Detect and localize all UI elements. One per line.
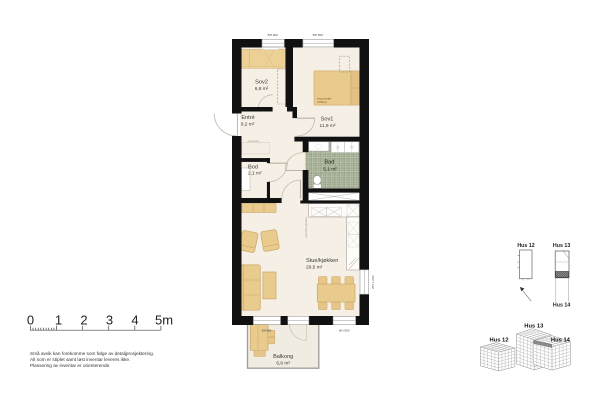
svg-text:6,6 m²: 6,6 m² [276, 361, 290, 367]
svg-text:2,1 m²: 2,1 m² [248, 171, 262, 177]
svg-text:Hus 13: Hus 13 [524, 323, 544, 329]
svg-text:Bad: Bad [324, 160, 334, 166]
svg-text:1: 1 [55, 313, 62, 328]
svg-text:Sov1: Sov1 [321, 117, 334, 123]
svg-text:BH 900: BH 900 [313, 33, 324, 37]
svg-text:1500mm: 1500mm [317, 100, 327, 104]
svg-text:Stue/kjøkken: Stue/kjøkken [306, 258, 338, 264]
svg-text:5m: 5m [155, 313, 173, 328]
svg-text:4: 4 [131, 313, 138, 328]
svg-text:Alt som er stiplet samt løst i: Alt som er stiplet samt løst inventar le… [30, 357, 130, 362]
svg-text:Sov2: Sov2 [255, 80, 268, 86]
svg-text:Balkong: Balkong [273, 354, 293, 360]
svg-text:Bod: Bod [248, 164, 258, 170]
svg-text:9,2 m²: 9,2 m² [241, 122, 255, 128]
svg-text:3: 3 [106, 313, 113, 328]
svg-text:BH900: BH900 [262, 329, 272, 333]
svg-text:5,1 m²: 5,1 m² [323, 167, 337, 173]
svg-text:BH 900: BH 900 [339, 329, 350, 333]
svg-text:Hus 14: Hus 14 [553, 302, 570, 308]
svg-text:garderobe: garderobe [248, 139, 260, 143]
svg-text:Små avvik kan forekomme som fø: Små avvik kan forekomme som følge av det… [30, 350, 154, 356]
svg-text:Hus 12: Hus 12 [489, 338, 508, 344]
svg-text:6,8 m²: 6,8 m² [255, 86, 269, 92]
svg-text:BH 1 200: BH 1 200 [371, 275, 375, 288]
svg-text:Hus 12: Hus 12 [517, 243, 534, 249]
svg-text:BH 900: BH 900 [268, 33, 279, 37]
svg-text:Entré: Entré [241, 115, 254, 121]
svg-text:Hus 13: Hus 13 [553, 243, 570, 249]
svg-text:oppstilling kjøkken: oppstilling kjøkken [304, 216, 308, 238]
svg-text:Plassering av inventar er orie: Plassering av inventar er orienterende. [30, 363, 111, 368]
svg-text:2: 2 [80, 313, 87, 328]
svg-text:29,5 m²: 29,5 m² [306, 265, 323, 271]
svg-text:0: 0 [27, 313, 34, 328]
svg-text:Hus 14: Hus 14 [551, 337, 571, 343]
svg-text:11,9 m²: 11,9 m² [320, 123, 336, 129]
